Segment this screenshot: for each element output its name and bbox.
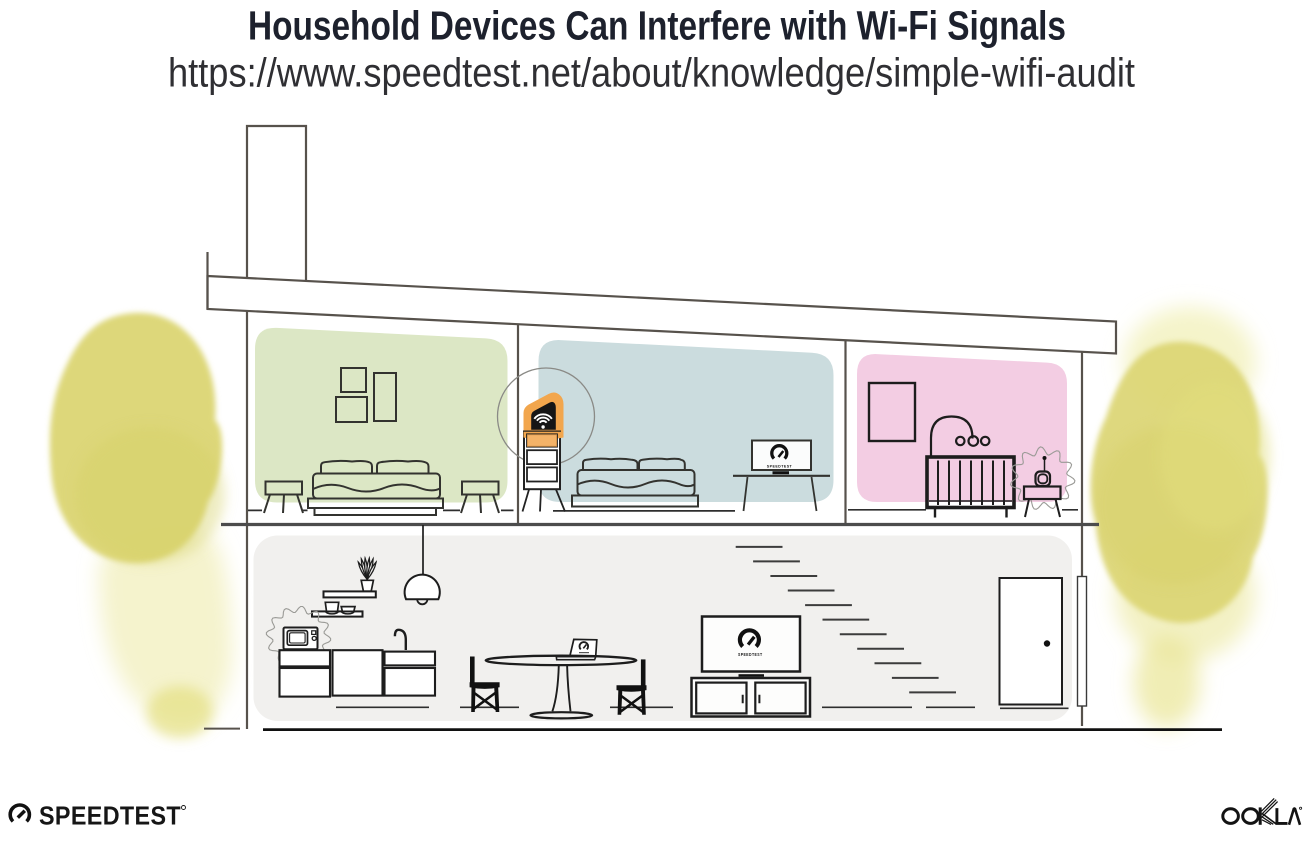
svg-text:https://www.speedtest.net/abou: https://www.speedtest.net/about/knowledg… bbox=[168, 50, 1136, 96]
svg-text:SPEEDTEST: SPEEDTEST bbox=[738, 652, 763, 657]
svg-text:SPEEDTEST: SPEEDTEST bbox=[39, 803, 181, 831]
svg-text:SPEEDTEST: SPEEDTEST bbox=[767, 464, 793, 468]
svg-text:Household Devices Can Interfer: Household Devices Can Interfere with Wi-… bbox=[248, 3, 1066, 49]
